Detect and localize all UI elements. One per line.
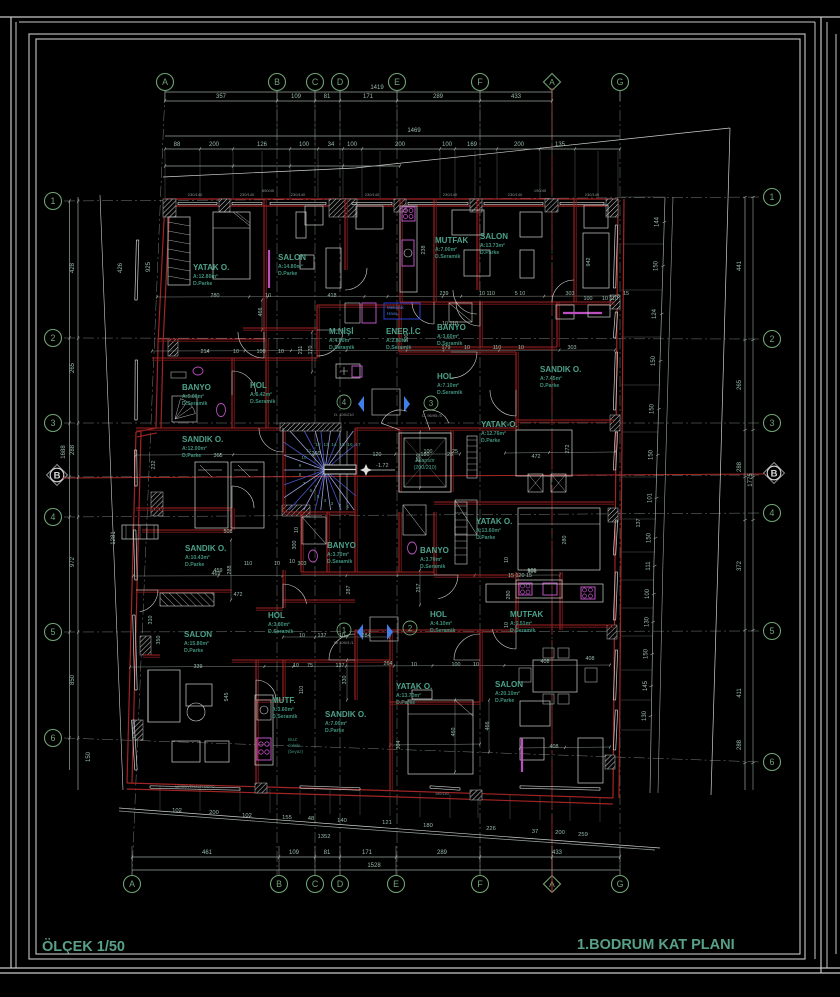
svg-text:A:5.42m²: A:5.42m² <box>250 392 272 398</box>
svg-text:508: 508 <box>224 529 233 535</box>
svg-text:YATAK-O.: YATAK-O. <box>481 420 518 429</box>
svg-text:265: 265 <box>70 362 76 373</box>
svg-text:137: 137 <box>636 519 642 528</box>
svg-text:D.Seramik: D.Seramik <box>268 629 293 635</box>
svg-text:102: 102 <box>242 813 252 819</box>
svg-text:D.Seramik: D.Seramik <box>435 254 460 260</box>
svg-text:A:5.51m²: A:5.51m² <box>510 621 532 627</box>
svg-text:48: 48 <box>308 816 314 822</box>
svg-text:Hava.: Hava. <box>387 311 399 316</box>
svg-text:E: E <box>393 879 399 889</box>
svg-text:339: 339 <box>194 664 203 670</box>
svg-text:A:3.60m²: A:3.60m² <box>272 707 294 713</box>
svg-text:2: 2 <box>51 333 56 343</box>
svg-text:145: 145 <box>643 680 649 691</box>
svg-text:14: 14 <box>331 442 337 448</box>
svg-text:A: A <box>162 77 168 87</box>
svg-text:Mekanik: Mekanik <box>387 305 405 310</box>
svg-text:dolabı: dolabı <box>288 743 300 748</box>
svg-text:408: 408 <box>541 659 550 665</box>
svg-text:232: 232 <box>151 461 157 470</box>
svg-text:150: 150 <box>649 449 655 460</box>
svg-text:D.Parke: D.Parke <box>396 700 415 706</box>
svg-text:6: 6 <box>770 757 775 767</box>
svg-text:D. 100/210: D. 100/210 <box>334 412 354 417</box>
svg-text:137: 137 <box>336 663 345 669</box>
svg-text:150: 150 <box>86 751 92 762</box>
svg-text:C: C <box>312 77 319 87</box>
svg-text:472: 472 <box>234 592 243 598</box>
svg-text:SALON: SALON <box>184 630 212 639</box>
svg-text:100: 100 <box>404 334 410 343</box>
svg-text:D.Parke: D.Parke <box>278 271 297 277</box>
svg-text:102: 102 <box>172 808 182 814</box>
svg-text:3: 3 <box>331 501 334 507</box>
svg-text:10: 10 <box>504 622 510 628</box>
svg-text:SANDIK O.: SANDIK O. <box>185 544 226 553</box>
svg-text:1: 1 <box>347 504 350 510</box>
svg-text:D.Parke: D.Parke <box>185 562 204 568</box>
svg-text:A:12.76m²: A:12.76m² <box>481 431 506 437</box>
svg-text:A:13.60m²: A:13.60m² <box>476 528 501 534</box>
svg-text:111: 111 <box>646 561 652 571</box>
svg-text:G: G <box>617 77 624 87</box>
svg-text:265: 265 <box>737 379 743 390</box>
svg-text:100: 100 <box>299 142 310 148</box>
svg-text:A:15.80m²: A:15.80m² <box>184 641 209 647</box>
svg-text:230/140: 230/140 <box>291 192 306 197</box>
svg-text:126: 126 <box>257 142 268 148</box>
svg-text:1352: 1352 <box>318 834 331 840</box>
svg-text:310: 310 <box>148 616 154 625</box>
svg-text:10: 10 <box>289 559 295 565</box>
svg-text:D.Parke: D.Parke <box>325 728 344 734</box>
svg-text:A:12.80m²: A:12.80m² <box>193 274 218 280</box>
svg-text:15: 15 <box>339 442 345 448</box>
svg-text:110: 110 <box>493 345 502 351</box>
svg-text:D.Parke: D.Parke <box>495 698 514 704</box>
svg-text:10: 10 <box>265 293 271 299</box>
svg-text:4: 4 <box>324 498 327 504</box>
svg-text:238: 238 <box>421 246 427 255</box>
svg-text:179: 179 <box>442 345 451 351</box>
svg-text:MUTF.: MUTF. <box>272 696 296 705</box>
svg-text:472: 472 <box>532 454 541 460</box>
svg-text:1: 1 <box>51 196 56 206</box>
svg-text:100: 100 <box>645 588 651 599</box>
svg-text:10 110: 10 110 <box>442 321 458 327</box>
svg-text:466: 466 <box>485 722 491 731</box>
svg-text:D.Seramik: D.Seramik <box>182 401 207 407</box>
svg-text:25: 25 <box>447 452 453 458</box>
svg-text:10: 10 <box>294 527 300 533</box>
svg-text:433: 433 <box>552 850 563 856</box>
svg-text:10: 10 <box>473 662 479 668</box>
svg-text:4: 4 <box>770 508 775 518</box>
svg-text:D.Parke: D.Parke <box>182 453 201 459</box>
svg-text:HOL: HOL <box>268 611 285 620</box>
svg-text:140: 140 <box>337 818 347 824</box>
svg-text:441: 441 <box>737 260 743 271</box>
svg-text:288: 288 <box>227 566 233 575</box>
svg-text:17: 17 <box>355 442 361 448</box>
svg-text:200: 200 <box>209 810 219 816</box>
svg-text:150: 150 <box>646 532 652 543</box>
svg-text:37: 37 <box>532 829 538 835</box>
svg-text:109: 109 <box>291 94 302 100</box>
svg-text:461: 461 <box>202 850 213 856</box>
svg-text:10: 10 <box>293 663 299 669</box>
svg-text:SANDIK O.: SANDIK O. <box>540 365 581 374</box>
svg-text:F: F <box>477 879 483 889</box>
svg-text:D.Parke: D.Parke <box>540 383 559 389</box>
svg-text:10: 10 <box>518 345 524 351</box>
svg-text:A:3.60m²: A:3.60m² <box>437 334 459 340</box>
svg-text:(beyaz): (beyaz) <box>288 749 304 754</box>
svg-text:D.Seramik: D.Seramik <box>329 345 354 351</box>
svg-text:303: 303 <box>568 345 577 351</box>
svg-text:121: 121 <box>382 820 392 826</box>
svg-text:7: 7 <box>303 481 306 487</box>
svg-text:259: 259 <box>578 832 588 838</box>
svg-text:A:13.70m²: A:13.70m² <box>396 693 421 699</box>
svg-text:C: C <box>312 879 319 889</box>
svg-text:230/140: 230/140 <box>443 192 458 197</box>
svg-text:10: 10 <box>299 633 305 639</box>
svg-text:D.Seramik: D.Seramik <box>420 564 445 570</box>
svg-text:155: 155 <box>282 815 292 821</box>
svg-text:8: 8 <box>299 472 302 478</box>
svg-text:(200/210): (200/210) <box>413 465 436 471</box>
svg-text:466: 466 <box>258 308 264 317</box>
svg-text:ÖLÇEK 1/50: ÖLÇEK 1/50 <box>42 938 125 955</box>
svg-text:180: 180 <box>423 823 433 829</box>
svg-text:4: 4 <box>51 512 56 522</box>
svg-text:190/140: 190/140 <box>435 792 449 796</box>
svg-text:5: 5 <box>51 627 56 637</box>
svg-text:D/ 100/3 /1: D/ 100/3 /1 <box>334 640 354 645</box>
svg-text:1.BODRUM KAT PLANI: 1.BODRUM KAT PLANI <box>577 937 735 953</box>
svg-text:169: 169 <box>467 142 478 148</box>
svg-text:190/45: 190/45 <box>534 188 547 193</box>
svg-text:BANYO: BANYO <box>327 541 356 550</box>
svg-text:15: 15 <box>623 291 629 297</box>
svg-text:A:4.80m²: A:4.80m² <box>329 338 351 344</box>
svg-text:2: 2 <box>339 503 342 509</box>
svg-text:16: 16 <box>347 442 353 448</box>
svg-text:289: 289 <box>437 850 448 856</box>
svg-text:239: 239 <box>440 291 449 297</box>
svg-text:5: 5 <box>770 626 775 636</box>
svg-text:459: 459 <box>214 568 223 574</box>
svg-text:6: 6 <box>310 488 313 494</box>
svg-text:D.Parke: D.Parke <box>480 250 499 256</box>
svg-text:10: 10 <box>274 561 280 567</box>
svg-text:433: 433 <box>511 94 522 100</box>
svg-text:2: 2 <box>408 624 413 633</box>
svg-text:81: 81 <box>324 850 331 856</box>
svg-text:303: 303 <box>298 561 307 567</box>
svg-text:288: 288 <box>737 461 743 472</box>
svg-text:3: 3 <box>51 418 56 428</box>
svg-text:284: 284 <box>362 633 371 639</box>
svg-text:100: 100 <box>442 142 453 148</box>
svg-text:408: 408 <box>550 744 559 750</box>
svg-text:BANYO: BANYO <box>182 383 211 392</box>
svg-text:150: 150 <box>651 355 657 366</box>
svg-text:130: 130 <box>644 616 650 627</box>
svg-text:10 110: 10 110 <box>479 291 495 297</box>
svg-text:D.Seramik: D.Seramik <box>510 628 535 634</box>
svg-text:230/140: 230/140 <box>188 192 203 197</box>
svg-text:408: 408 <box>586 656 595 662</box>
svg-text:BUZ: BUZ <box>288 737 297 742</box>
svg-text:411: 411 <box>737 688 743 698</box>
svg-text:171: 171 <box>362 850 373 856</box>
svg-text:D: D <box>337 77 343 87</box>
svg-text:SALON: SALON <box>495 680 523 689</box>
svg-text:SALON: SALON <box>480 232 508 241</box>
svg-text:3: 3 <box>770 418 775 428</box>
svg-text:10: 10 <box>339 633 345 639</box>
svg-text:A:12.00m²: A:12.00m² <box>182 446 207 452</box>
svg-text:1528: 1528 <box>367 863 381 869</box>
svg-text:34: 34 <box>328 142 335 148</box>
svg-text:330: 330 <box>342 676 348 685</box>
svg-text:12: 12 <box>315 442 321 448</box>
svg-text:D. 95/95 /3: D. 95/95 /3 <box>422 413 442 418</box>
svg-text:1688: 1688 <box>61 445 67 459</box>
svg-text:4: 4 <box>342 398 347 407</box>
svg-text:460: 460 <box>451 728 457 737</box>
svg-text:A:7.10m²: A:7.10m² <box>437 383 459 389</box>
svg-text:10: 10 <box>278 349 284 355</box>
svg-text:171: 171 <box>363 94 374 100</box>
svg-text:200: 200 <box>514 142 525 148</box>
svg-text:D: D <box>337 879 343 889</box>
svg-text:304: 304 <box>396 741 402 750</box>
svg-text:A: A <box>549 77 555 87</box>
svg-text:303: 303 <box>566 291 575 297</box>
svg-text:B: B <box>274 77 280 87</box>
svg-text:A: A <box>129 879 135 889</box>
svg-text:214: 214 <box>201 349 210 355</box>
svg-text:A:3.80m²: A:3.80m² <box>268 622 290 628</box>
svg-text:BANYO: BANYO <box>420 546 449 555</box>
svg-text:D.Seramik: D.Seramik <box>437 390 462 396</box>
svg-text:288: 288 <box>737 739 743 750</box>
svg-text:G: G <box>617 879 624 889</box>
svg-text:150: 150 <box>650 403 656 414</box>
svg-text:110: 110 <box>299 686 305 695</box>
svg-text:B: B <box>771 469 778 480</box>
svg-text:101: 101 <box>647 492 653 503</box>
svg-text:A:7.00m²: A:7.00m² <box>325 721 347 727</box>
svg-text:150: 150 <box>653 260 659 271</box>
svg-text:100: 100 <box>452 662 461 668</box>
svg-text:200: 200 <box>209 142 220 148</box>
svg-text:D.Seramik: D.Seramik <box>386 345 411 351</box>
svg-text:D.Parke: D.Parke <box>476 535 495 541</box>
svg-text:109: 109 <box>289 850 300 856</box>
svg-text:-1.72: -1.72 <box>376 463 389 469</box>
svg-text:YATAK O.: YATAK O. <box>476 517 512 526</box>
svg-text:MUTFAK: MUTFAK <box>510 610 544 619</box>
svg-text:135: 135 <box>555 142 566 148</box>
svg-text:1: 1 <box>770 192 775 202</box>
svg-text:YATAK O.: YATAK O. <box>193 263 229 272</box>
svg-text:75: 75 <box>307 663 313 669</box>
svg-text:B: B <box>276 879 282 889</box>
svg-text:180: 180 <box>421 452 430 458</box>
svg-text:289: 289 <box>433 94 444 100</box>
svg-text:230/140: 230/140 <box>508 192 523 197</box>
svg-text:2: 2 <box>770 334 775 344</box>
svg-text:A:10.43m²: A:10.43m² <box>185 555 210 561</box>
svg-text:A:13.73m²: A:13.73m² <box>480 243 505 249</box>
svg-text:144: 144 <box>654 216 660 227</box>
svg-text:10: 10 <box>464 345 470 351</box>
svg-text:6: 6 <box>51 733 56 743</box>
svg-text:280: 280 <box>211 293 220 299</box>
svg-text:D.Parke: D.Parke <box>481 438 500 444</box>
svg-text:350: 350 <box>156 636 162 645</box>
svg-text:D.Seramik: D.Seramik <box>327 559 352 565</box>
svg-text:260: 260 <box>312 451 321 457</box>
svg-text:YATAK O.: YATAK O. <box>396 682 432 691</box>
svg-text:A:4.10m²: A:4.10m² <box>430 621 452 627</box>
svg-text:545: 545 <box>224 693 230 702</box>
svg-text:170: 170 <box>308 346 314 355</box>
svg-text:5 10: 5 10 <box>515 291 526 297</box>
svg-text:M.NİŞİ: M.NİŞİ <box>329 327 353 336</box>
svg-text:A:7.00m²: A:7.00m² <box>435 247 457 253</box>
svg-text:264: 264 <box>384 661 393 667</box>
svg-text:890/45: 890/45 <box>262 188 275 193</box>
svg-text:MUTFAK: MUTFAK <box>435 236 469 245</box>
svg-text:230/140: 230/140 <box>585 192 600 197</box>
svg-text:SANDIK O.: SANDIK O. <box>182 435 223 444</box>
svg-text:D.Seramik: D.Seramik <box>250 399 275 405</box>
svg-text:3: 3 <box>429 399 434 408</box>
svg-text:MERDIVENALTI DEPO: MERDIVENALTI DEPO <box>175 785 215 789</box>
svg-text:9: 9 <box>299 463 302 469</box>
svg-text:1775: 1775 <box>748 473 754 487</box>
svg-text:10: 10 <box>233 349 239 355</box>
svg-text:1281: 1281 <box>111 531 117 545</box>
svg-text:110: 110 <box>244 561 253 567</box>
svg-text:A:3.70m²: A:3.70m² <box>327 552 349 558</box>
svg-text:137: 137 <box>318 633 327 639</box>
svg-text:230/140: 230/140 <box>365 192 380 197</box>
svg-text:10 110: 10 110 <box>602 296 618 302</box>
svg-text:357: 357 <box>216 94 227 100</box>
svg-text:D.Seramik: D.Seramik <box>272 714 297 720</box>
svg-text:200: 200 <box>395 142 406 148</box>
svg-text:10: 10 <box>301 455 307 461</box>
svg-text:HOL: HOL <box>430 610 447 619</box>
svg-text:272: 272 <box>565 445 571 454</box>
svg-text:850: 850 <box>70 674 76 685</box>
svg-text:925: 925 <box>146 261 152 272</box>
svg-text:365: 365 <box>214 453 223 459</box>
svg-text:230/140: 230/140 <box>240 192 255 197</box>
svg-text:211: 211 <box>298 346 304 355</box>
svg-text:1419: 1419 <box>370 85 384 91</box>
svg-text:100: 100 <box>584 296 593 302</box>
svg-text:HOL: HOL <box>437 372 454 381</box>
svg-text:SANDIK O.: SANDIK O. <box>325 710 366 719</box>
svg-text:150: 150 <box>644 648 650 659</box>
svg-text:257: 257 <box>416 584 422 593</box>
svg-text:D.Parke: D.Parke <box>184 648 203 654</box>
svg-text:A:7.45m²: A:7.45m² <box>540 376 562 382</box>
svg-text:A:5.60m²: A:5.60m² <box>182 394 204 400</box>
svg-text:A:20.10m²: A:20.10m² <box>495 691 520 697</box>
svg-text:10: 10 <box>504 557 510 563</box>
svg-text:418: 418 <box>328 293 337 299</box>
svg-text:D.Parke: D.Parke <box>193 281 212 287</box>
svg-text:287: 287 <box>346 586 352 595</box>
svg-text:81: 81 <box>324 94 331 100</box>
svg-text:124: 124 <box>652 308 658 319</box>
svg-text:100: 100 <box>257 349 266 355</box>
svg-text:426: 426 <box>118 262 124 273</box>
svg-text:372: 372 <box>737 560 743 571</box>
svg-text:130: 130 <box>642 710 648 721</box>
svg-text:HOL: HOL <box>250 381 267 390</box>
svg-text:B: B <box>54 471 61 482</box>
svg-text:13: 13 <box>323 442 329 448</box>
svg-text:D.Seramik: D.Seramik <box>430 628 455 634</box>
svg-text:F: F <box>477 77 483 87</box>
svg-text:226: 226 <box>486 826 496 832</box>
svg-text:5: 5 <box>317 494 320 500</box>
svg-text:942: 942 <box>586 258 592 267</box>
svg-text:972: 972 <box>70 556 76 567</box>
svg-text:SALON: SALON <box>278 253 306 262</box>
svg-text:280: 280 <box>506 591 512 600</box>
svg-text:280: 280 <box>562 536 568 545</box>
svg-text:300: 300 <box>292 541 298 550</box>
svg-text:120: 120 <box>373 452 382 458</box>
svg-text:505: 505 <box>528 568 537 574</box>
svg-text:A:14.80m²: A:14.80m² <box>278 264 303 270</box>
svg-text:88: 88 <box>174 142 181 148</box>
svg-text:1469: 1469 <box>407 128 421 134</box>
svg-text:A:3.70m²: A:3.70m² <box>420 557 442 563</box>
svg-text:288: 288 <box>70 444 76 455</box>
svg-text:E: E <box>394 77 400 87</box>
svg-text:10: 10 <box>411 662 417 668</box>
svg-text:428: 428 <box>70 262 76 273</box>
svg-text:200: 200 <box>555 830 565 836</box>
svg-text:100: 100 <box>347 142 358 148</box>
